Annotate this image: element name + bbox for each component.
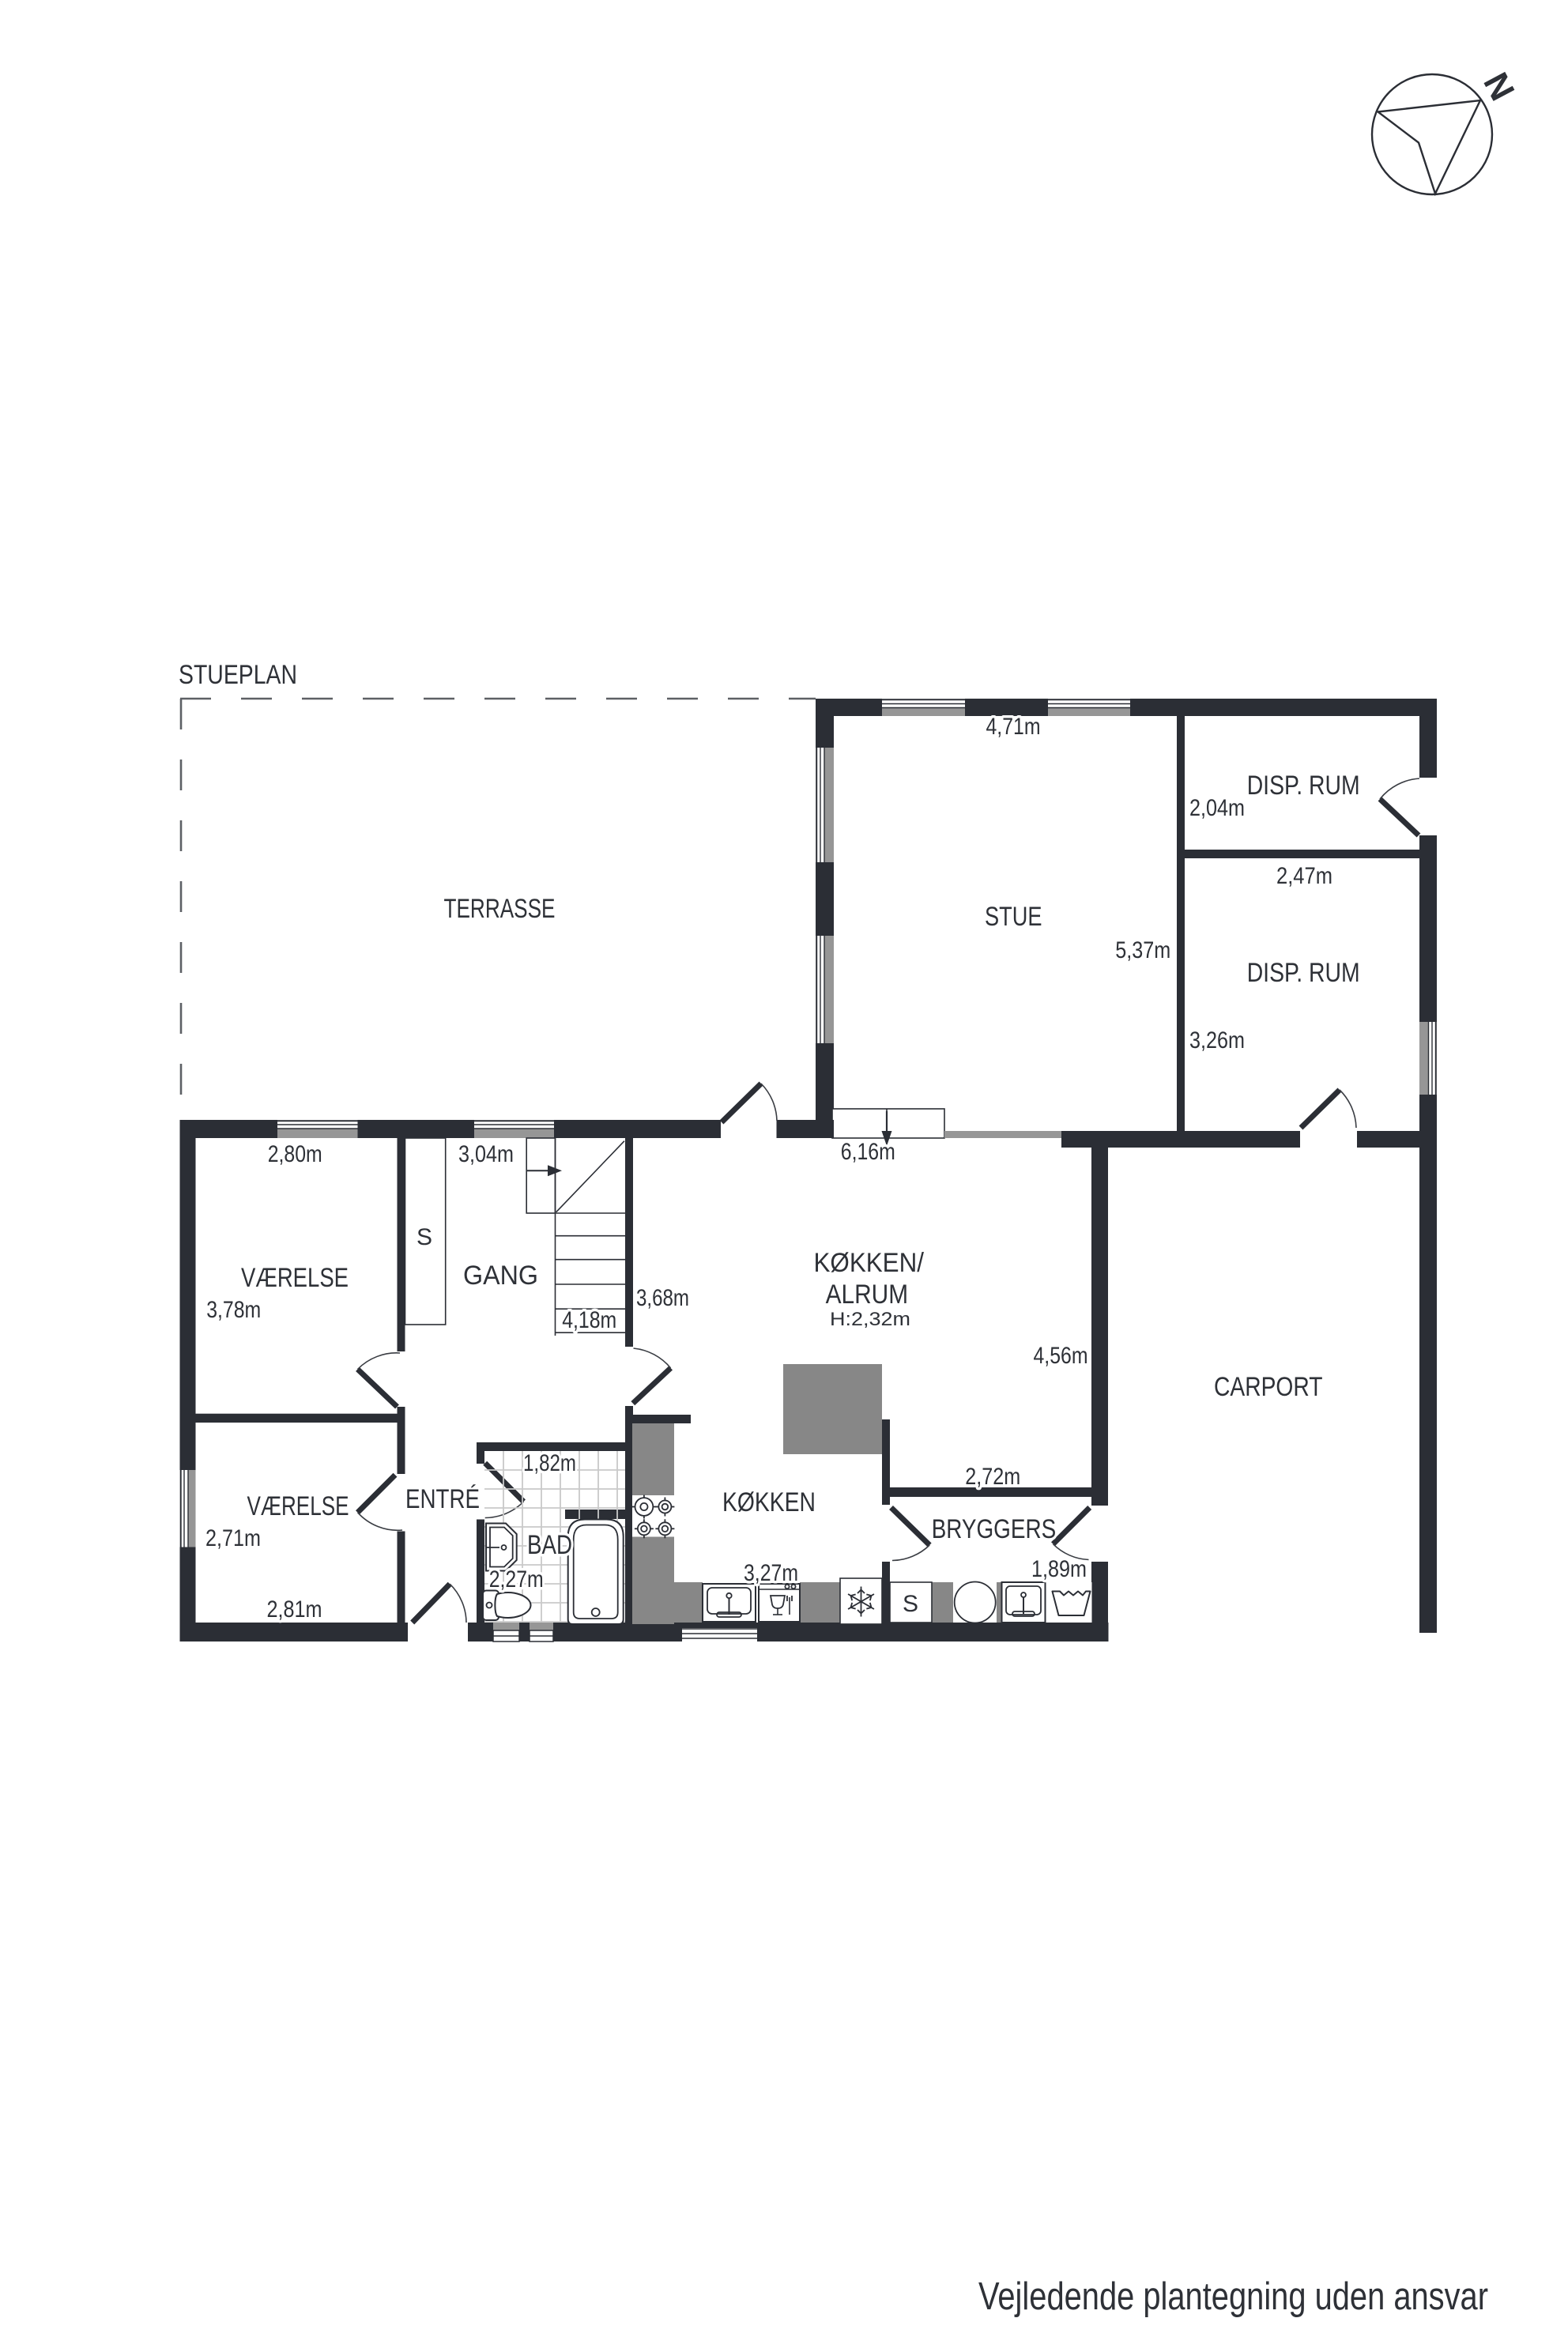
svg-text:2,04m: 2,04m — [1189, 795, 1245, 821]
svg-text:2,71m: 2,71m — [205, 1525, 261, 1551]
svg-text:Vejledende plantegning uden an: Vejledende plantegning uden ansvar — [978, 2275, 1488, 2318]
svg-text:2,72m: 2,72m — [965, 1464, 1020, 1490]
svg-text:GANG: GANG — [463, 1261, 538, 1291]
svg-text:DISP. RUM: DISP. RUM — [1247, 771, 1360, 801]
svg-text:TERRASSE: TERRASSE — [444, 894, 556, 924]
svg-text:STUEPLAN: STUEPLAN — [179, 660, 297, 690]
svg-text:S: S — [416, 1224, 432, 1250]
svg-text:BAD: BAD — [527, 1530, 572, 1560]
svg-text:2,27m: 2,27m — [489, 1566, 544, 1592]
svg-text:3,78m: 3,78m — [206, 1297, 261, 1323]
svg-text:BRYGGERS: BRYGGERS — [932, 1514, 1057, 1544]
svg-text:KØKKEN/: KØKKEN/ — [814, 1248, 925, 1278]
svg-text:KØKKEN: KØKKEN — [722, 1487, 816, 1517]
svg-text:STUE: STUE — [985, 902, 1042, 932]
svg-text:2,81m: 2,81m — [267, 1596, 322, 1623]
svg-text:VÆRELSE: VÆRELSE — [247, 1491, 349, 1521]
svg-text:2,80m: 2,80m — [268, 1141, 322, 1167]
svg-text:H:2,32m: H:2,32m — [830, 1309, 910, 1330]
svg-text:CARPORT: CARPORT — [1214, 1372, 1323, 1402]
svg-text:3,68m: 3,68m — [636, 1285, 689, 1311]
svg-text:DISP. RUM: DISP. RUM — [1247, 958, 1360, 988]
svg-text:3,27m: 3,27m — [744, 1560, 798, 1586]
svg-text:4,56m: 4,56m — [1034, 1343, 1088, 1369]
svg-text:ALRUM: ALRUM — [826, 1280, 909, 1310]
svg-text:S: S — [903, 1591, 918, 1617]
svg-text:2,47m: 2,47m — [1276, 863, 1332, 889]
svg-text:1,82m: 1,82m — [523, 1450, 576, 1476]
svg-text:6,16m: 6,16m — [841, 1139, 895, 1165]
svg-text:3,04m: 3,04m — [458, 1141, 514, 1167]
svg-text:ENTRÉ: ENTRÉ — [405, 1484, 480, 1514]
svg-text:4,71m: 4,71m — [986, 714, 1041, 740]
svg-text:3,26m: 3,26m — [1189, 1027, 1245, 1053]
svg-text:1,89m: 1,89m — [1031, 1556, 1087, 1582]
svg-text:VÆRELSE: VÆRELSE — [241, 1263, 349, 1293]
svg-text:5,37m: 5,37m — [1115, 937, 1170, 963]
svg-text:4,18m: 4,18m — [562, 1307, 616, 1333]
